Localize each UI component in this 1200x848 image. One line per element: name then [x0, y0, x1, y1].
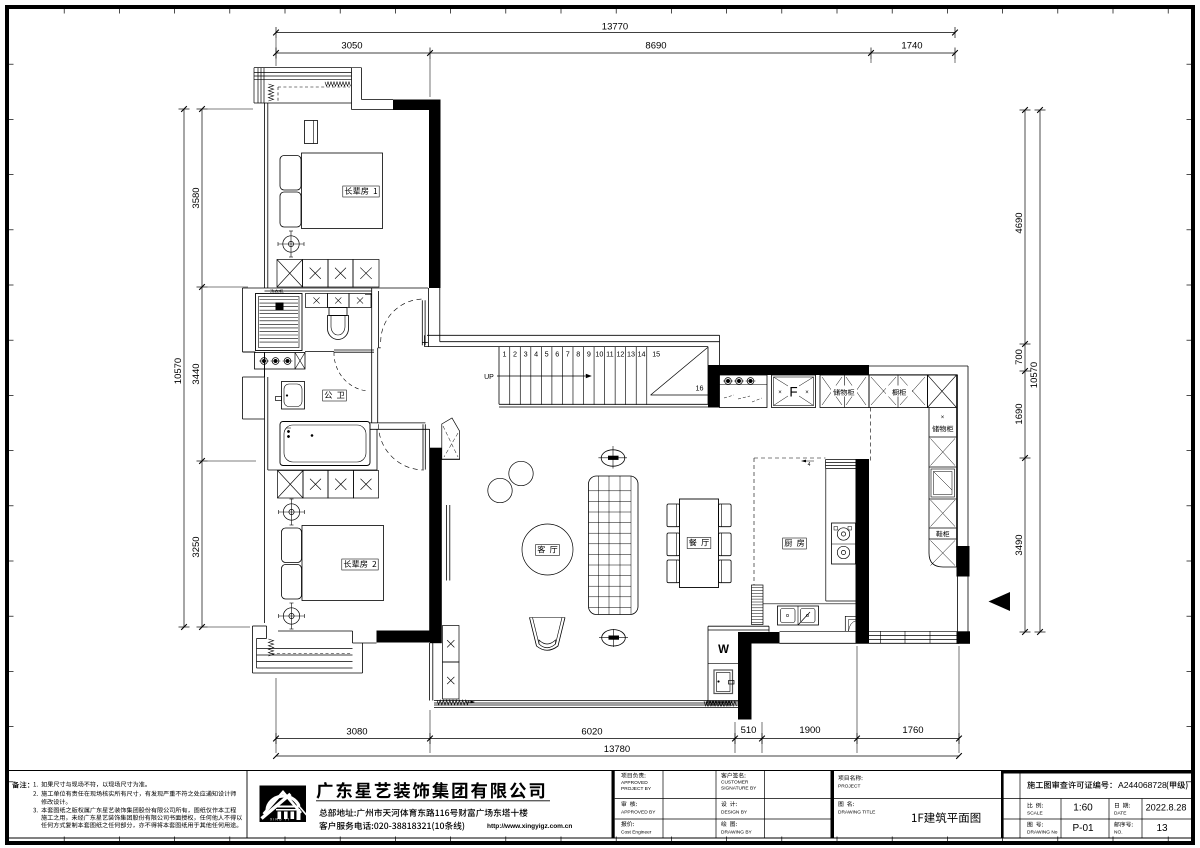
svg-text:SCALE: SCALE — [1027, 811, 1043, 817]
svg-text:12: 12 — [616, 349, 624, 358]
svg-text:3580: 3580 — [191, 187, 202, 208]
svg-text:1740: 1740 — [901, 41, 922, 52]
svg-text:Cost Engineer: Cost Engineer — [621, 830, 652, 836]
svg-text:2: 2 — [513, 349, 517, 358]
svg-text:9: 9 — [587, 349, 591, 358]
svg-text:4: 4 — [808, 462, 811, 468]
svg-text:3080: 3080 — [346, 727, 367, 738]
svg-text:3440: 3440 — [191, 363, 202, 384]
svg-text:13780: 13780 — [604, 744, 630, 755]
svg-text:DRAWING No: DRAWING No — [1027, 830, 1058, 836]
svg-text:×: × — [805, 390, 809, 396]
svg-text:1:60: 1:60 — [1073, 803, 1093, 814]
svg-text:13: 13 — [1156, 823, 1168, 834]
svg-text:10: 10 — [595, 349, 603, 358]
svg-text:3: 3 — [524, 349, 528, 358]
svg-text:15: 15 — [652, 349, 660, 358]
svg-text:F: F — [789, 385, 797, 400]
svg-text:W: W — [718, 644, 729, 656]
svg-text:6: 6 — [555, 349, 559, 358]
svg-text:1: 1 — [503, 349, 507, 358]
svg-text:4: 4 — [534, 349, 538, 358]
svg-text:1900: 1900 — [799, 725, 820, 736]
svg-text:http://www.xingyigz.com.cn: http://www.xingyigz.com.cn — [487, 823, 572, 830]
svg-text:8: 8 — [576, 349, 580, 358]
svg-text:510: 510 — [741, 725, 757, 736]
svg-text:DESIGN BY: DESIGN BY — [721, 810, 748, 816]
svg-text:NO.: NO. — [1114, 830, 1123, 836]
svg-text:A244068728: A244068728 — [1118, 780, 1167, 790]
svg-text:3250: 3250 — [191, 536, 202, 557]
svg-text:5: 5 — [545, 349, 549, 358]
svg-text:DRAWING BY: DRAWING BY — [721, 830, 753, 836]
svg-text:13: 13 — [627, 349, 635, 358]
svg-text:3490: 3490 — [1014, 534, 1025, 555]
svg-text:10570: 10570 — [173, 358, 184, 384]
svg-text:14: 14 — [638, 349, 646, 358]
svg-text:UP: UP — [484, 374, 494, 381]
svg-text:13770: 13770 — [602, 22, 628, 33]
svg-text:3050: 3050 — [341, 41, 362, 52]
svg-text:8690: 8690 — [645, 41, 666, 52]
svg-text:6020: 6020 — [581, 727, 602, 738]
svg-text:10570: 10570 — [1029, 362, 1040, 388]
svg-text:SIGNATURE BY: SIGNATURE BY — [721, 786, 757, 792]
svg-text:7: 7 — [566, 349, 570, 358]
svg-text:APPROVED BY: APPROVED BY — [621, 810, 656, 816]
svg-text:PROJECT: PROJECT — [838, 784, 860, 790]
svg-text:DATE: DATE — [1114, 811, 1126, 817]
svg-text:×: × — [941, 415, 945, 421]
svg-text:APPROVED: APPROVED — [621, 780, 648, 786]
svg-text:11: 11 — [606, 349, 613, 358]
svg-text:×: × — [778, 390, 782, 396]
svg-text:PROJECT BY: PROJECT BY — [621, 786, 652, 792]
svg-text:XING YI: XING YI — [270, 818, 290, 822]
svg-text:1690: 1690 — [1014, 403, 1025, 424]
svg-text:700: 700 — [1014, 349, 1025, 365]
svg-text:DRAWING TITLE: DRAWING TITLE — [838, 810, 875, 816]
svg-text:CUSTOMER: CUSTOMER — [721, 780, 749, 786]
svg-text:4690: 4690 — [1014, 212, 1025, 233]
svg-text:P-01: P-01 — [1072, 823, 1094, 834]
svg-text:1760: 1760 — [902, 725, 923, 736]
svg-text:2022.8.28: 2022.8.28 — [1146, 803, 1187, 813]
svg-text:16: 16 — [696, 384, 704, 393]
